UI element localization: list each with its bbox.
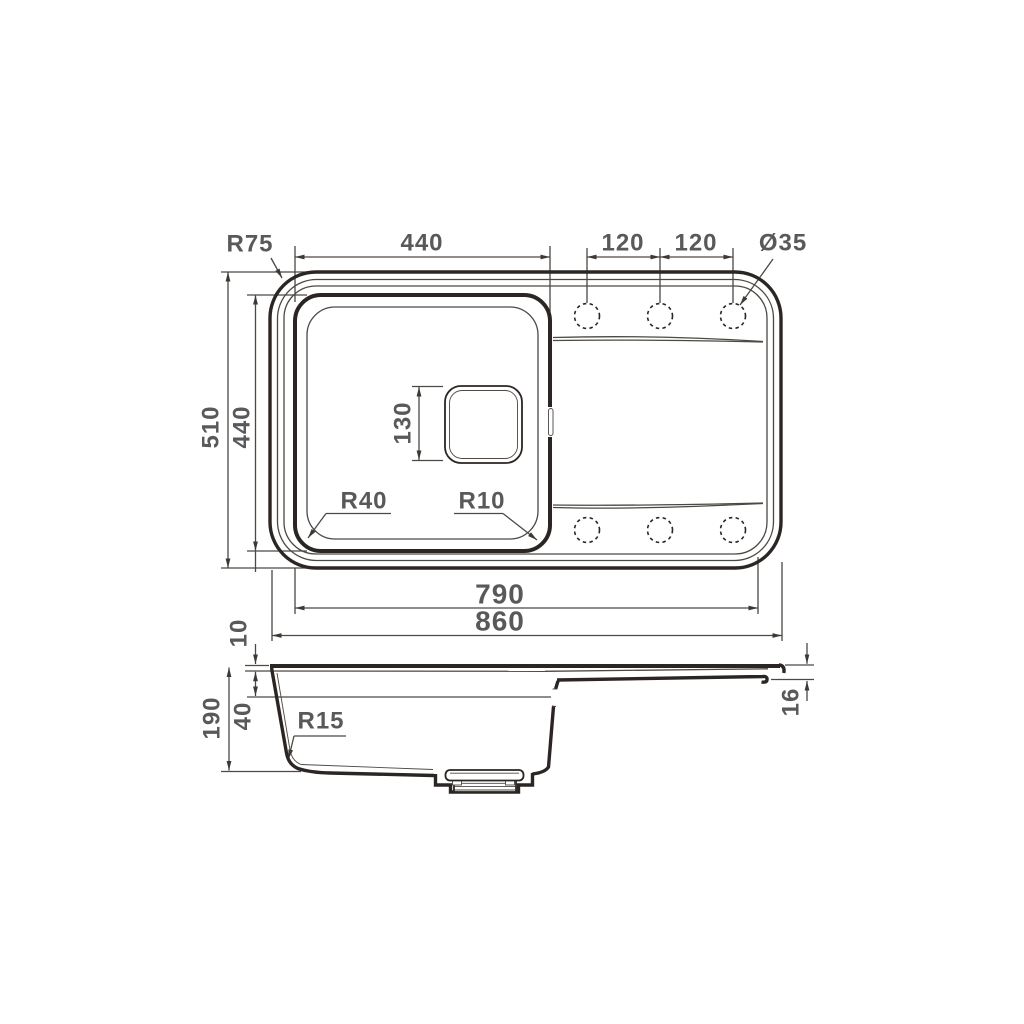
- tap-hole: [648, 518, 673, 543]
- dim-tap-spacing-right-label: 120: [674, 230, 717, 257]
- tap-hole: [575, 518, 600, 543]
- sink-rim-line-1: [278, 280, 774, 561]
- sink-profile: [270, 665, 784, 792]
- bowl-outline: [295, 295, 550, 551]
- dim-bottom-corner-radius-label: R15: [297, 708, 344, 735]
- tap-hole: [721, 304, 746, 329]
- dim-bowl-inner-radius-label: R10: [458, 488, 505, 515]
- sink-outer-outline: [270, 272, 781, 568]
- drawing-canvas: R75 440 120 120 Ø35 510 440 130 R40 R10 …: [0, 0, 1024, 1024]
- dim-drainboard-thickness-label: 16: [778, 688, 805, 717]
- tap-hole: [721, 518, 746, 543]
- overflow-notch: [546, 407, 555, 437]
- tap-hole: [575, 304, 600, 329]
- dim-total-depth-label: 190: [199, 696, 226, 739]
- dim-tap-hole-diameter-label: Ø35: [759, 230, 807, 257]
- drain-assembly: [446, 770, 524, 792]
- dim-bowl-depth-label: 440: [229, 405, 256, 448]
- sink-technical-drawing: R75 440 120 120 Ø35 510 440 130 R40 R10 …: [0, 0, 1024, 1024]
- dim-bowl-corner-radius-label: R40: [340, 488, 387, 515]
- dim-overall-depth-label: 510: [198, 405, 225, 448]
- side-view: 10 40 190 R15 16: [199, 619, 815, 792]
- dim-bowl-width-label: 440: [400, 230, 443, 257]
- drainboard-lines: [553, 337, 763, 508]
- dim-ledge-depth-label: 40: [230, 702, 257, 731]
- top-view: R75 440 120 120 Ø35 510 440 130 R40 R10 …: [198, 230, 808, 642]
- dim-overall-width-label: 860: [475, 606, 525, 637]
- drain-square: [445, 386, 522, 463]
- tap-hole: [648, 304, 673, 329]
- dim-drain-size-label: 130: [390, 401, 417, 444]
- dim-rim-thickness-label: 10: [226, 619, 253, 648]
- dim-corner-radius-label: R75: [226, 231, 273, 258]
- dim-tap-spacing-left-label: 120: [601, 230, 644, 257]
